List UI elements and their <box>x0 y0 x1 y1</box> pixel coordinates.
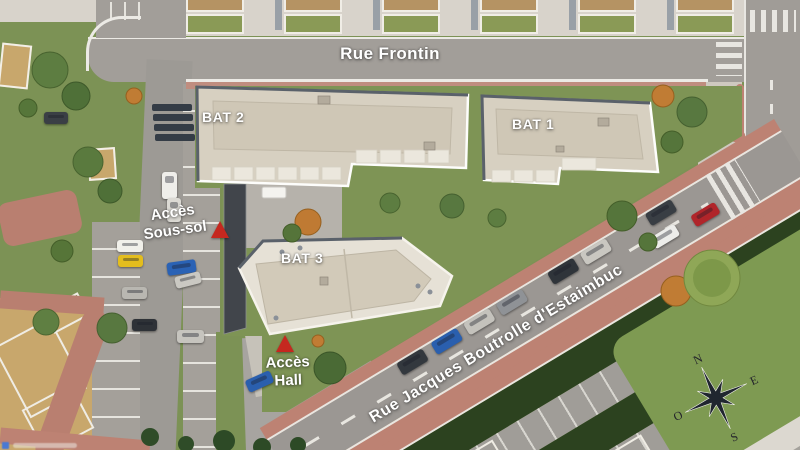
lot-dirt-patch <box>382 0 440 12</box>
access-sous-sol-marker-triangle <box>211 221 229 238</box>
north-lot <box>480 0 538 36</box>
fence-divider <box>373 0 380 30</box>
tree-icon <box>62 82 90 110</box>
watermark-logo-icon <box>2 442 9 449</box>
dirt-patch-outlined <box>87 147 117 181</box>
north-lot <box>186 0 244 36</box>
dirt-patch-outlined <box>0 43 32 90</box>
building-label-bat2: BAT 2 <box>202 109 244 126</box>
parked-car <box>177 330 204 343</box>
parked-car <box>132 319 157 331</box>
tree-icon <box>98 179 122 203</box>
parked-car <box>44 112 68 124</box>
site-plan-aerial-view: Rue Jacques Boutrolle d'Estaimbuc <box>0 0 800 450</box>
tree-icon <box>32 52 68 88</box>
fence-divider <box>569 0 576 30</box>
street-label-rue-frontin: Rue Frontin <box>320 44 460 65</box>
tree-icon <box>51 240 73 262</box>
lot-dirt-patch <box>186 0 244 12</box>
north-lot <box>382 0 440 36</box>
lot-dirt-patch <box>480 0 538 12</box>
access-hall-marker-triangle <box>276 335 294 352</box>
access-hall-line2: Hall <box>246 371 331 392</box>
parked-car <box>162 172 177 199</box>
fence-divider <box>275 0 282 30</box>
tree-icon <box>19 99 37 117</box>
lot-grass-patch <box>186 14 244 34</box>
tree-icon <box>126 88 142 104</box>
building-label-bat1: BAT 1 <box>512 116 554 133</box>
parked-car <box>122 287 147 299</box>
lot-dirt-patch <box>284 0 342 12</box>
fence-divider <box>667 0 674 30</box>
lot-dirt-patch <box>578 0 636 12</box>
curb-corner-curve <box>86 16 141 71</box>
lot-grass-patch <box>284 14 342 34</box>
parked-car <box>118 255 143 267</box>
lot-grass-patch <box>480 14 538 34</box>
lot-grass-patch <box>578 14 636 34</box>
lot-dirt-patch <box>676 0 734 12</box>
watermark <box>2 437 77 450</box>
fence-divider <box>471 0 478 30</box>
north-lot <box>284 0 342 36</box>
access-hall-label: Accès Hall <box>245 353 330 393</box>
lot-grass-patch <box>382 14 440 34</box>
crosswalk <box>716 42 742 76</box>
north-lot <box>676 0 734 36</box>
crosswalk <box>750 10 796 32</box>
north-walk-topleft <box>0 0 96 22</box>
watermark-text-bar <box>13 443 77 448</box>
north-lot <box>578 0 636 36</box>
pink-pavement <box>0 188 84 248</box>
building-label-bat3: BAT 3 <box>281 250 323 267</box>
lot-grass-patch <box>676 14 734 34</box>
